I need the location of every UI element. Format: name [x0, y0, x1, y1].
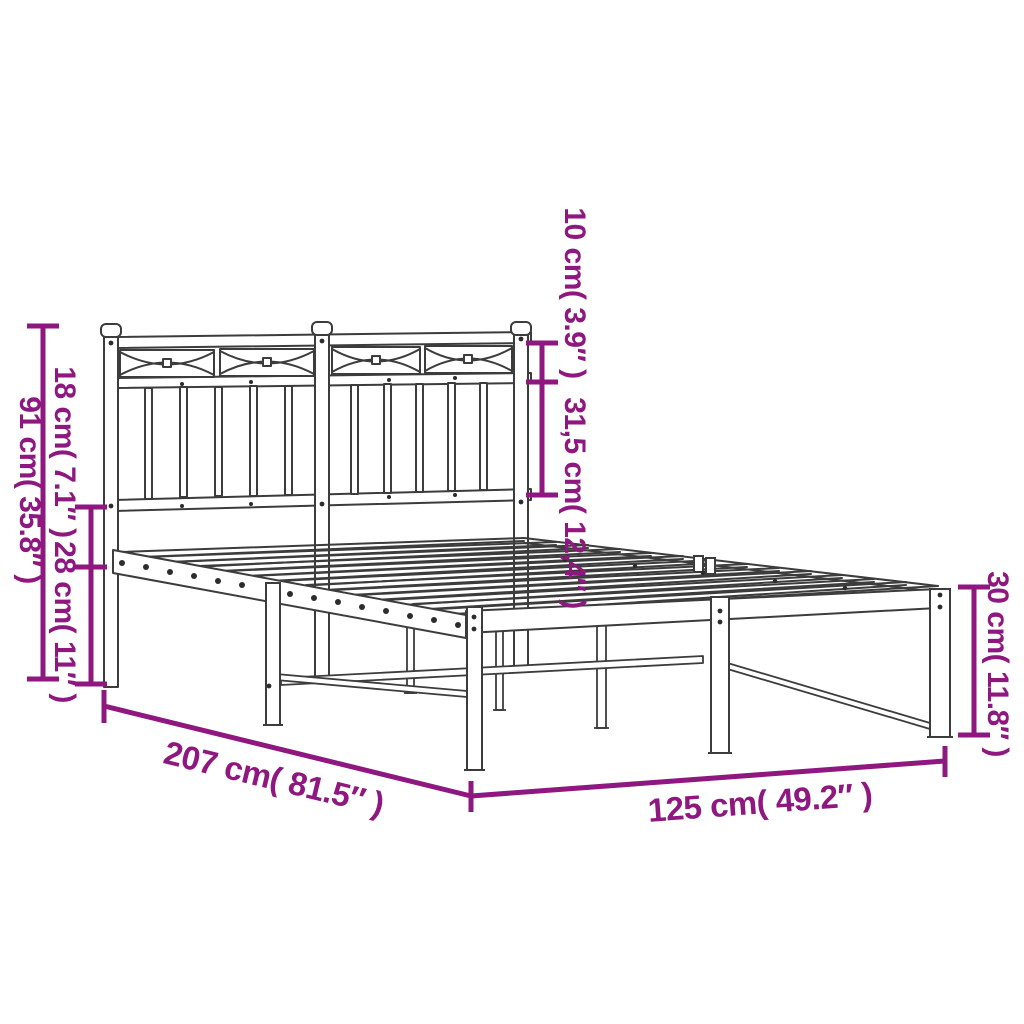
dim-line-decor-and-panel [526, 343, 558, 495]
side-rail-holes [119, 560, 461, 628]
product-dimension-diagram: 91 cm( 35.8″ ) 18 cm( 7.1″ ) 28 cm( 11″ … [0, 0, 1024, 1024]
dim-decor-height-label: 10 cm( 3.9″ ) [559, 207, 589, 378]
bed-frame-illustration [0, 0, 1024, 1024]
dim-panel-height-label: 31,5 cm( 12,4″ ) [559, 397, 589, 609]
dim-headboard-height-label: 91 cm( 35.8″ ) [14, 396, 44, 583]
dim-leg-height-label: 30 cm( 11.8″ ) [982, 571, 1012, 757]
dim-base-height-label: 28 cm( 11″ ) [49, 541, 79, 703]
dim-headboard-upper-label: 18 cm( 7.1″ ) [49, 366, 79, 537]
foot-rail [466, 589, 938, 633]
